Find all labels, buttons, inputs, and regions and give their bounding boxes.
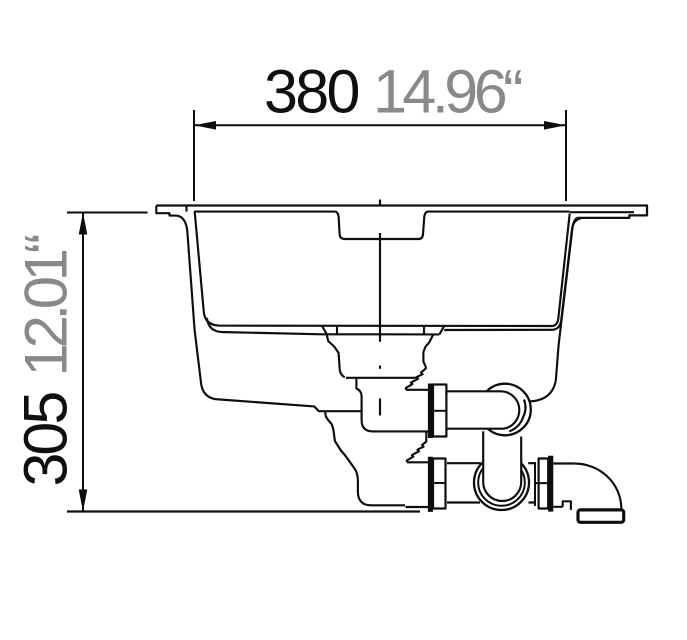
svg-text:14.96“: 14.96“ [373,58,522,126]
svg-text:12.01“: 12.01“ [13,235,80,376]
svg-text:380: 380 [264,58,358,126]
svg-text:305: 305 [12,393,80,487]
